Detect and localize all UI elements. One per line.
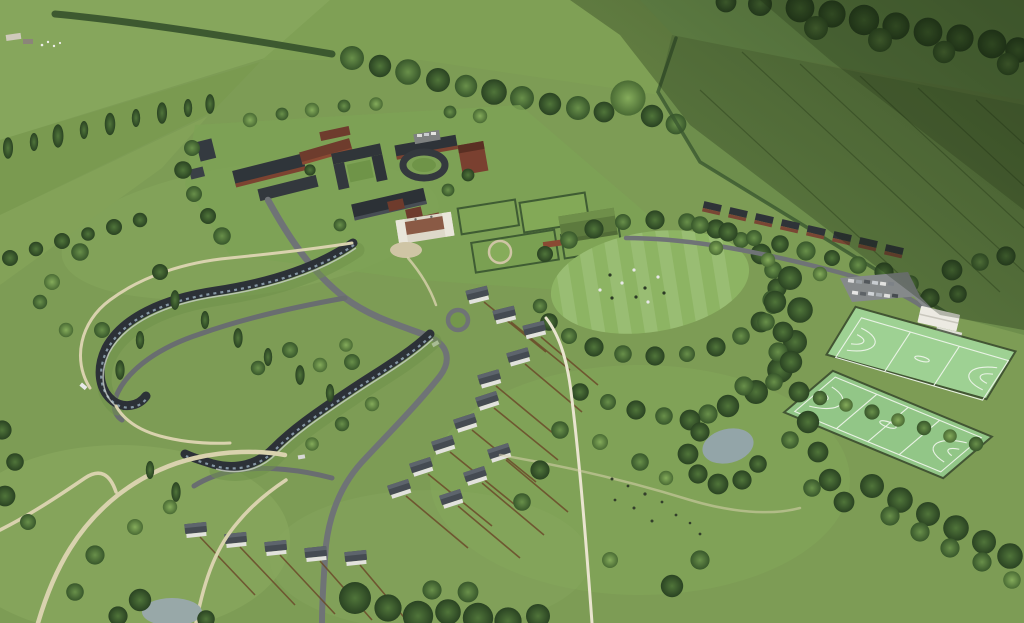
manor-forecourt xyxy=(390,242,422,258)
roundabout xyxy=(448,310,468,330)
masterplan-canvas xyxy=(0,0,1024,623)
circular-lawn xyxy=(489,241,511,263)
big-red-block xyxy=(458,141,489,175)
rotunda-courtyard xyxy=(412,158,436,172)
aerial-site-render xyxy=(0,0,1024,623)
